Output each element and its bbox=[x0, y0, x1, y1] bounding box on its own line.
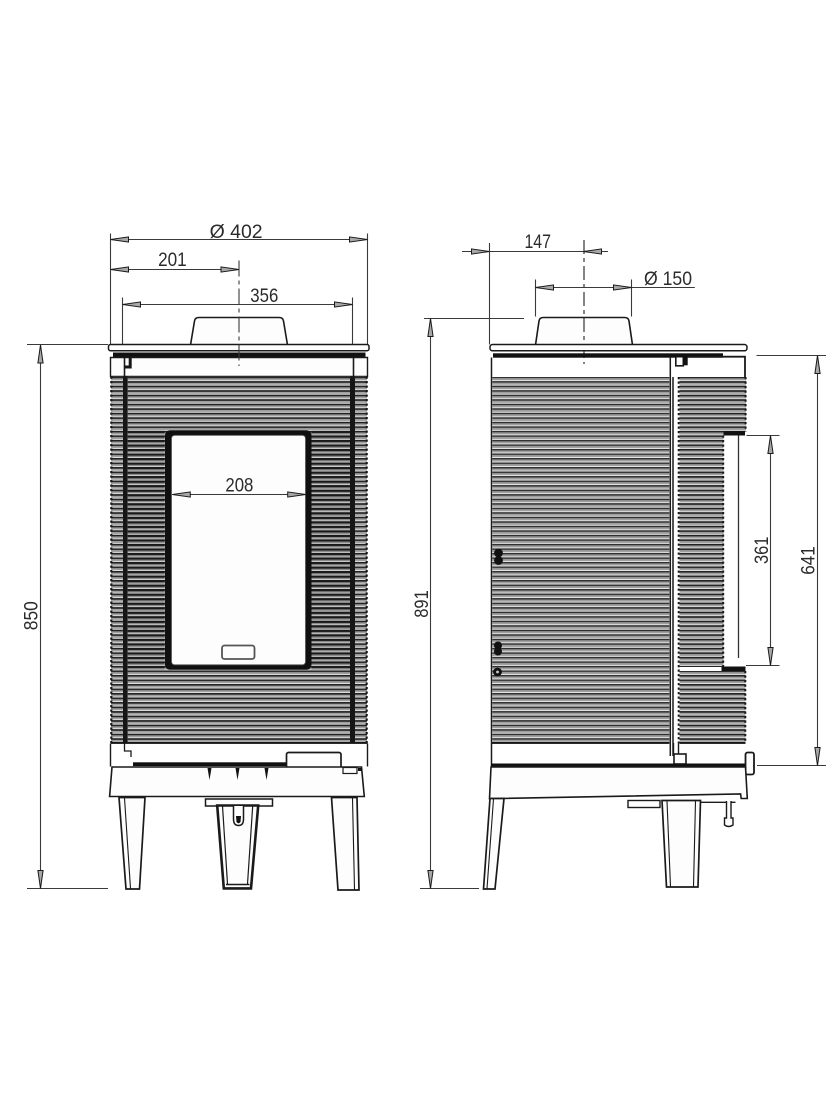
svg-text:361: 361 bbox=[751, 537, 773, 565]
svg-text:891: 891 bbox=[411, 590, 433, 618]
svg-text:147: 147 bbox=[524, 231, 551, 253]
svg-text:356: 356 bbox=[250, 285, 278, 307]
svg-text:850: 850 bbox=[21, 601, 43, 630]
svg-text:201: 201 bbox=[158, 249, 187, 271]
svg-text:208: 208 bbox=[225, 475, 253, 497]
svg-text:Ø 150: Ø 150 bbox=[644, 268, 692, 290]
svg-text:641: 641 bbox=[798, 546, 820, 575]
svg-text:Ø 402: Ø 402 bbox=[210, 221, 263, 243]
